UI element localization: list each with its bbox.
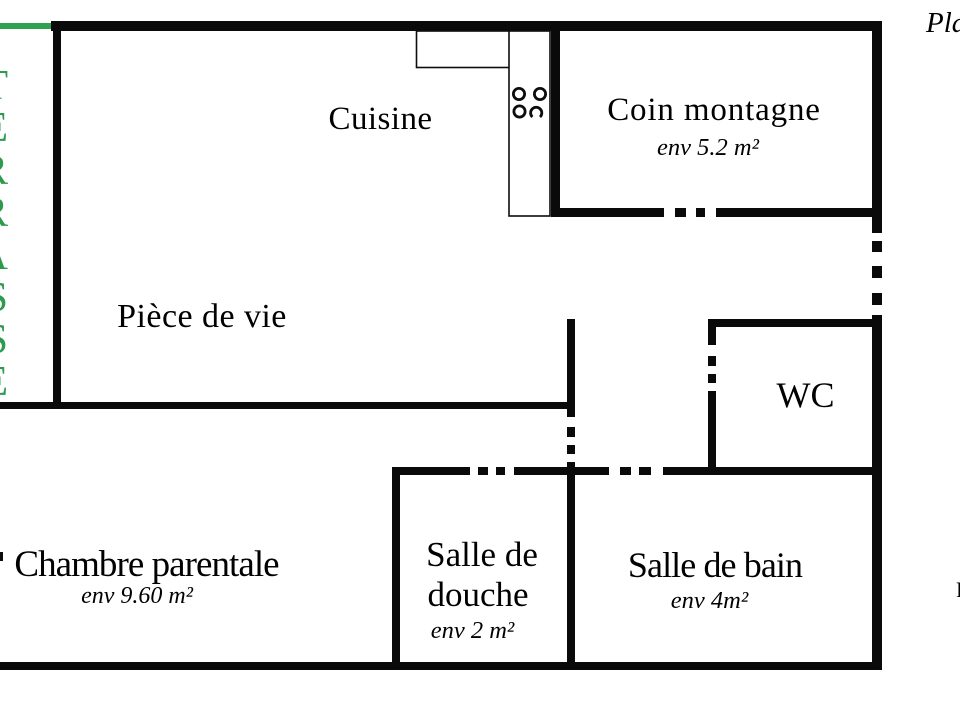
svg-text:Coin montagne: Coin montagne (607, 92, 821, 128)
svg-text:Pièce de vie: Pièce de vie (117, 298, 287, 335)
svg-text:env 5.2 m²: env 5.2 m² (657, 134, 760, 161)
svg-text:Cuisine: Cuisine (329, 101, 433, 137)
svg-text:E: E (0, 105, 8, 151)
svg-text:P: P (956, 577, 960, 602)
svg-text:E: E (0, 359, 8, 405)
svg-text:S: S (0, 317, 8, 363)
svg-text:Salle de bain: Salle de bain (628, 545, 803, 585)
svg-text:Plan: Plan (925, 7, 960, 39)
svg-text:env 4m²: env 4m² (671, 587, 749, 614)
svg-text:R: R (0, 190, 8, 236)
svg-text:WC: WC (777, 375, 835, 415)
svg-text:T: T (0, 63, 8, 109)
svg-text:douche: douche (427, 575, 528, 614)
svg-text:Salle de: Salle de (426, 535, 538, 574)
svg-text:env 2 m²: env 2 m² (431, 617, 515, 644)
svg-text:Chambre parentale: Chambre parentale (14, 544, 279, 585)
svg-text:A: A (0, 233, 9, 279)
svg-text:S: S (0, 275, 8, 321)
svg-text:R: R (0, 148, 8, 194)
svg-text:env 9.60 m²: env 9.60 m² (81, 583, 194, 609)
